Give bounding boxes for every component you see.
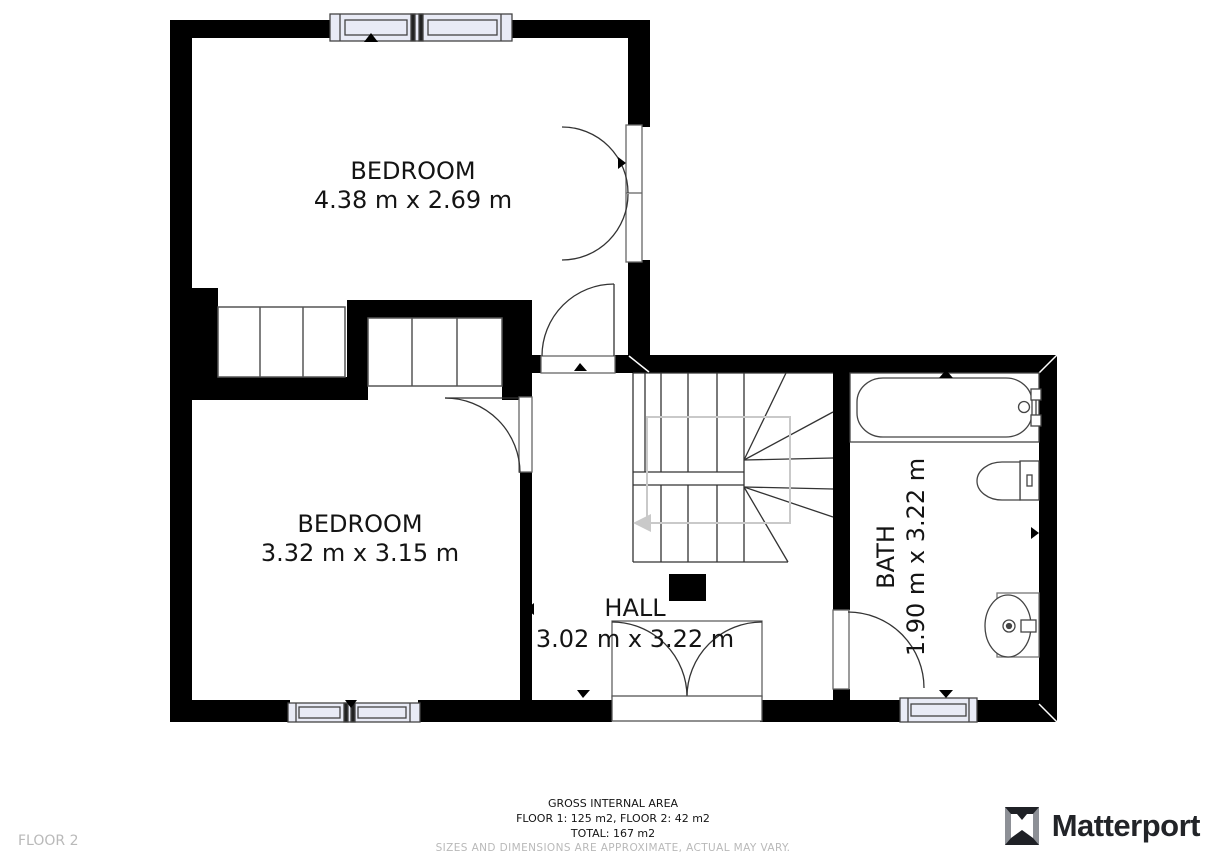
marker-down-bath [939,690,953,698]
bedroom1-name: BEDROOM [350,157,475,185]
window-bedroom1-top [330,14,512,41]
wall-right [1039,355,1057,722]
bathtub-faucet [1019,402,1030,413]
hall-name: HALL [604,594,666,622]
wall-bottom-seg3 [760,700,902,722]
marker-right-bedroom1 [618,157,626,169]
wall-bottom-seg1 [170,700,290,722]
bathtub [850,373,1041,442]
bath-fixtures [850,373,1041,657]
matterport-logo: Matterport [1001,804,1200,848]
wall-bedroom1-right-lower [628,260,650,360]
wall-bottom-seg4 [975,700,1057,722]
bedroom2-dims: 3.32 m x 3.15 m [261,539,459,567]
room-labels: BEDROOM 4.38 m x 2.69 m BEDROOM 3.32 m x… [261,157,930,656]
staircase [633,373,833,601]
bath-dims: 1.90 m x 3.22 m [902,458,930,656]
window-bedroom2-bottom [288,703,420,722]
floorplan-drawing: BEDROOM 4.38 m x 2.69 m BEDROOM 3.32 m x… [0,0,1226,867]
sink [985,593,1039,657]
matterport-logo-text: Matterport [1052,808,1200,844]
wall-under-closet-left [170,377,348,400]
stair-post-block [669,574,706,601]
floor-label: FLOOR 2 [18,833,78,849]
bedroom1-dims: 4.38 m x 2.69 m [314,186,512,214]
door-bedroom2 [445,397,532,473]
stair-winders-lower [744,487,833,562]
floorplan-page: { "plan": { "rooms": [ {"id":"bedroom-1"… [0,0,1226,867]
wall-closet-right-left-bar [347,300,368,400]
door-bedroom1-balcony-double [562,125,642,262]
wall-hall-left-upper [520,355,532,397]
matterport-logo-icon [1001,804,1043,848]
stair-direction-arrow [633,514,651,532]
bath-name: BATH [872,525,900,589]
marker-right-bath [1031,527,1039,539]
closet-left [218,307,345,377]
wall-hall-left-lower [520,471,532,722]
bedroom2-name: BEDROOM [297,510,422,538]
door-bedroom1-hall [541,284,615,373]
window-bath-bottom [900,698,977,722]
stair-void-outline [647,417,790,523]
marker-down-hall [577,690,590,698]
closet-right [368,318,502,386]
hall-dims: 3.02 m x 3.22 m [536,625,734,653]
toilet [977,461,1039,500]
wall-bottom-seg2 [418,700,612,722]
sink-tap [1021,620,1036,632]
wall-hall-bath-upper [833,355,850,610]
wall-bedroom1-right-upper [628,20,650,127]
